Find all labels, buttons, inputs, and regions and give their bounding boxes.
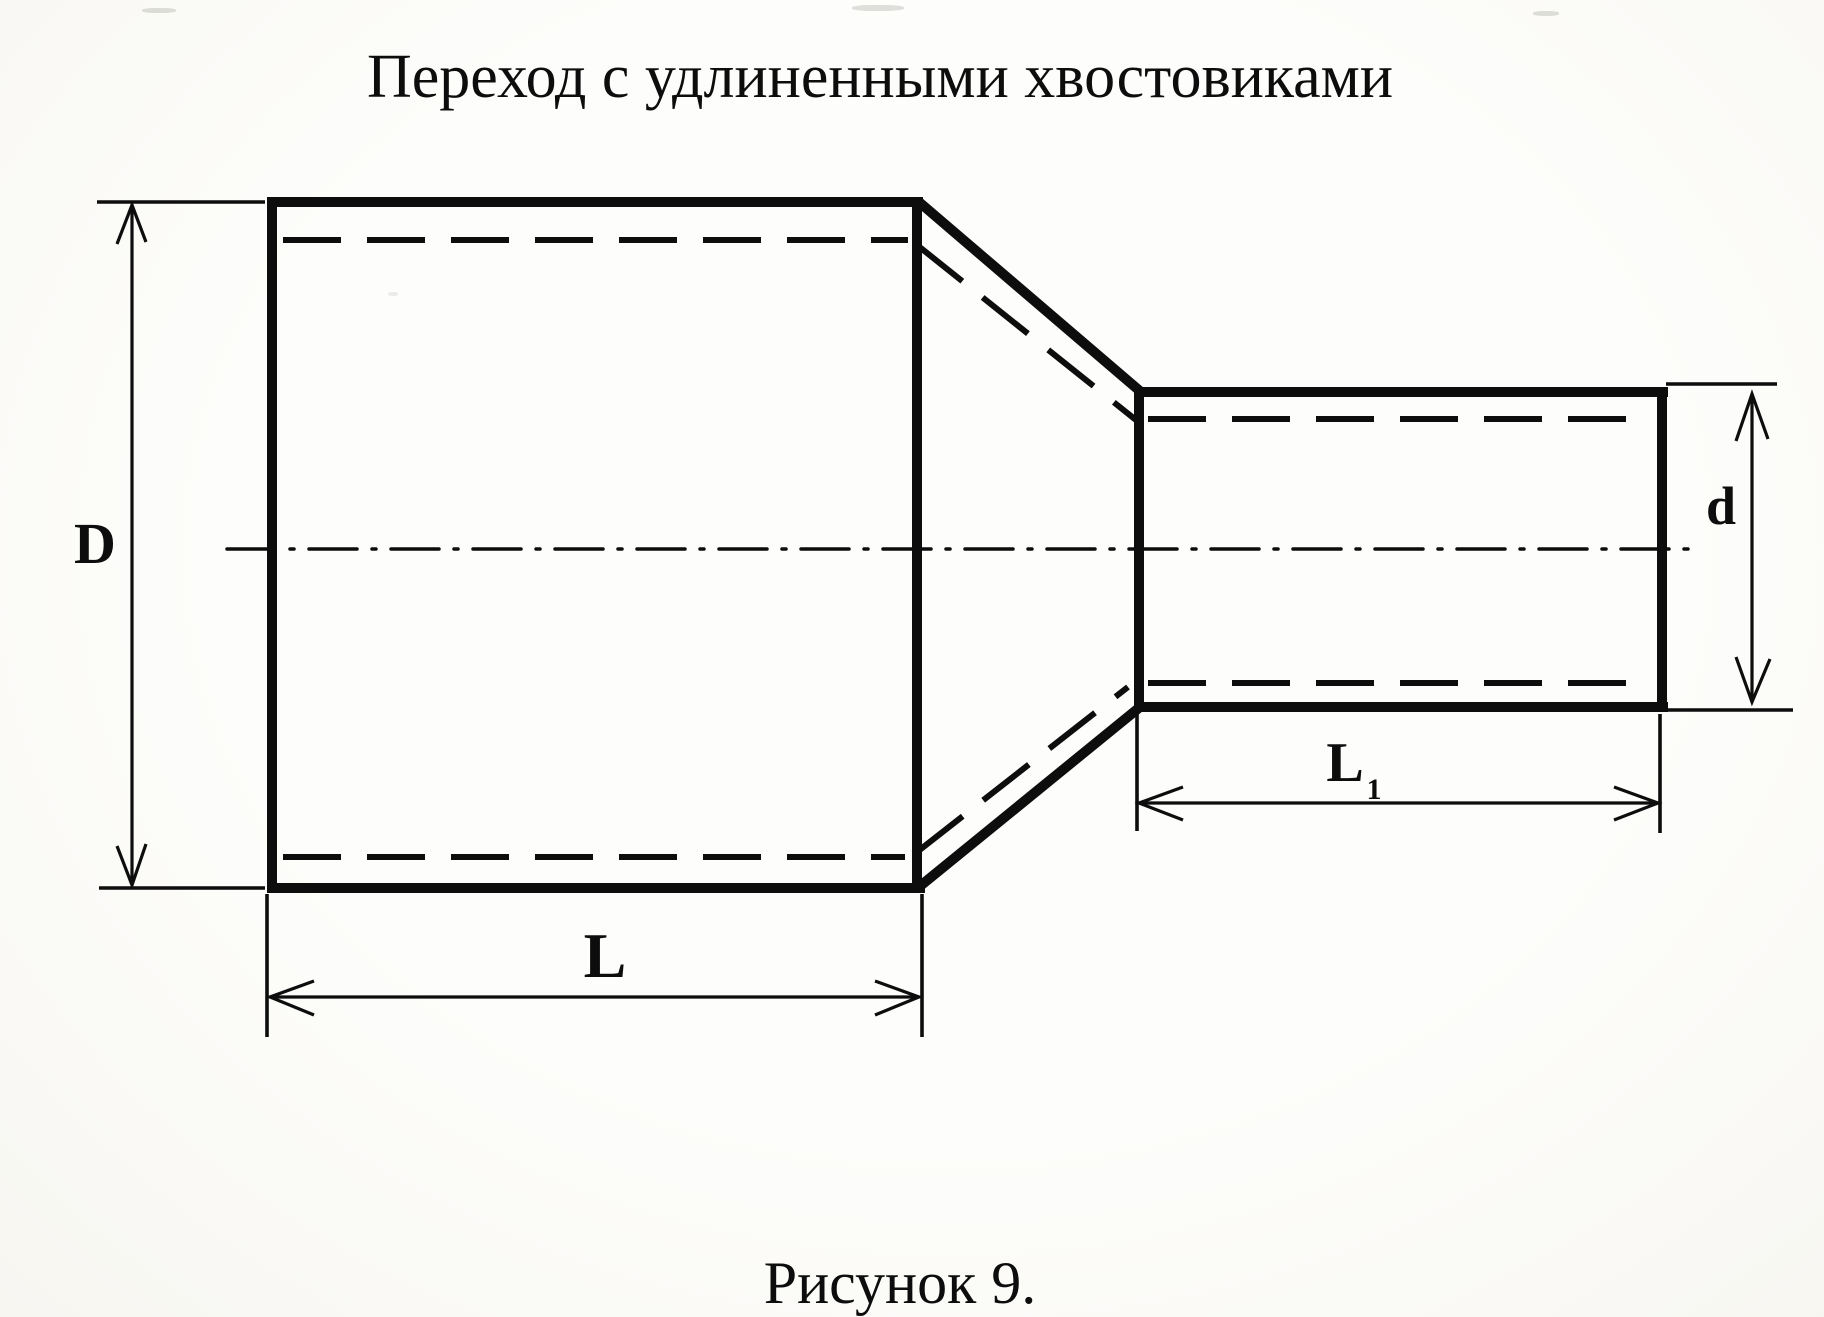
cone-top-outline bbox=[919, 202, 1141, 392]
dimension-L: L bbox=[267, 894, 922, 1037]
scanned-drawing-page: Переход с удлиненными хвостовиками bbox=[0, 0, 1824, 1317]
dimension-label-L: L bbox=[584, 920, 627, 991]
reducer-body bbox=[227, 197, 1702, 893]
dimension-label-D: D bbox=[74, 511, 116, 576]
dimension-D: D bbox=[74, 202, 265, 888]
dimension-d: d bbox=[1666, 384, 1793, 710]
dimension-L1: L 1 bbox=[1137, 712, 1660, 833]
cone-bottom-hidden-line bbox=[917, 687, 1128, 852]
dimension-label-L1-base: L bbox=[1326, 732, 1363, 794]
figure-title: Переход с удлиненными хвостовиками bbox=[367, 43, 1393, 111]
drawing-canvas: Переход с удлиненными хвостовиками bbox=[0, 0, 1824, 1317]
cone-top-hidden-line bbox=[917, 245, 1136, 420]
dimension-label-L1-subscript: 1 bbox=[1367, 773, 1382, 806]
figure-caption: Рисунок 9. bbox=[764, 1250, 1037, 1316]
cone-bottom-outline bbox=[919, 707, 1140, 887]
dimension-label-d: d bbox=[1706, 476, 1736, 536]
